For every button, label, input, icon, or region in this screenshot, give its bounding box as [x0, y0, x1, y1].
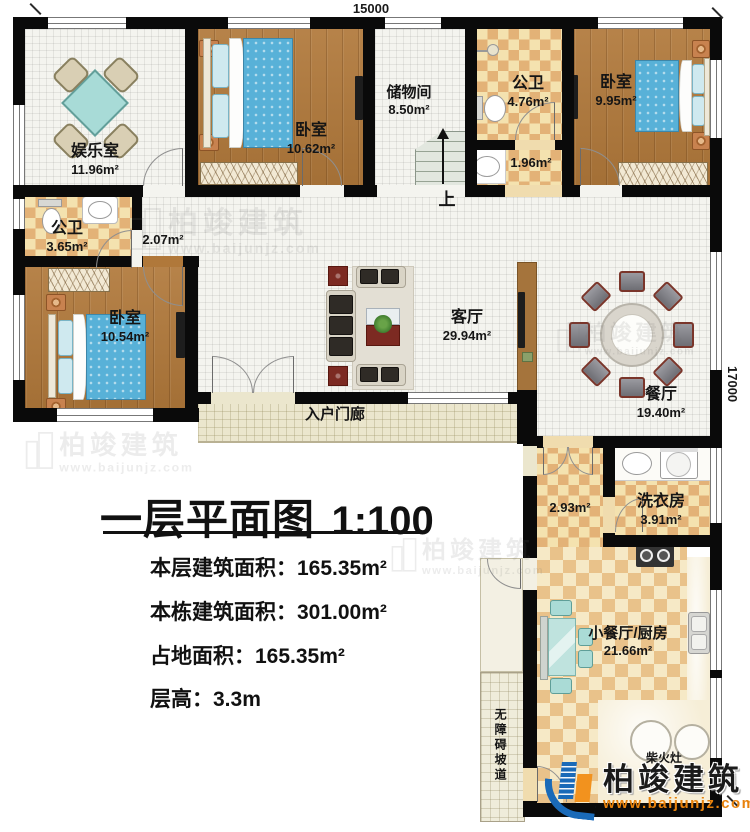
door-opening	[523, 558, 537, 590]
room-label-bath-left: 公卫 3.65m²	[46, 220, 87, 254]
toilet-tank	[38, 199, 62, 207]
stair-arrow-head	[437, 128, 449, 139]
sink-basin	[691, 634, 707, 650]
room-name: 无障碍坡道	[493, 708, 507, 783]
wardrobe	[618, 162, 708, 186]
room-label-bath-sub: 1.96m²	[510, 155, 551, 170]
room-name: 卧室	[287, 122, 335, 141]
window	[13, 295, 25, 380]
window	[710, 678, 722, 758]
nightstand	[46, 294, 66, 311]
bed-sheet	[679, 60, 692, 132]
chair	[550, 600, 572, 616]
room-area: 1.96m²	[510, 155, 551, 170]
sofa-cushion	[360, 269, 378, 284]
dimension-top: 15000	[341, 1, 401, 16]
bench	[540, 616, 548, 680]
wall	[363, 29, 375, 197]
door-opening	[300, 185, 344, 197]
room-label-storage: 储物间 8.50m²	[386, 84, 431, 117]
wall	[185, 29, 198, 197]
door-opening	[515, 140, 555, 150]
stat-floor-area: 本层建筑面积：165.35m²	[150, 552, 387, 582]
room-area: 21.66m²	[588, 643, 667, 658]
stat-total-area: 本栋建筑面积：301.00m²	[150, 596, 387, 626]
window	[48, 17, 126, 29]
door-opening	[523, 446, 537, 476]
washer-drum	[666, 452, 691, 477]
brand-logo: 柏竣建筑 www.baijunjz.com	[543, 757, 750, 819]
room-name: 卧室	[595, 74, 636, 93]
burner-icon	[640, 549, 653, 562]
chair	[619, 271, 645, 292]
room-area: 8.50m²	[386, 102, 431, 117]
room-label-hall: 2.07m²	[142, 232, 183, 247]
dimension-right: 17000	[725, 366, 740, 402]
watermark-logo-icon	[24, 432, 54, 469]
room-name: 公卫	[46, 220, 87, 239]
pillow	[58, 320, 73, 356]
window	[408, 392, 508, 404]
window	[57, 408, 153, 422]
label-ramp: 无障碍坡道	[493, 678, 507, 813]
dimension-tick	[29, 3, 41, 15]
room-name: 洗衣房	[637, 493, 685, 512]
room-label-corridor: 2.93m²	[549, 500, 590, 515]
stat-footprint: 占地面积：165.35m²	[150, 640, 345, 670]
wall	[562, 29, 574, 197]
room-label-entertainment: 娱乐室 11.96m²	[71, 143, 119, 177]
wardrobe	[200, 162, 298, 185]
room-area: 10.62m²	[287, 141, 335, 156]
bed-blanket	[635, 60, 679, 132]
window	[710, 590, 722, 670]
room-area: 2.93m²	[549, 500, 590, 515]
sink-icon	[474, 156, 500, 177]
window	[710, 448, 722, 523]
room-area: 9.95m²	[595, 93, 636, 108]
label-stairs-up: 上	[439, 190, 456, 210]
window	[228, 17, 310, 29]
title-underline	[103, 531, 421, 534]
watermark-url: www.baijunjz.com	[59, 460, 193, 474]
tv-icon	[176, 312, 185, 358]
brand-url: www.baijunjz.com	[603, 795, 750, 813]
pillow	[58, 358, 73, 394]
pillow	[212, 44, 229, 88]
room-label-living: 客厅 29.94m²	[443, 309, 491, 343]
room-name: 卧室	[101, 310, 149, 329]
room-name: 餐厅	[637, 386, 685, 405]
room-label-kitchen: 小餐厅/厨房 21.66m²	[588, 625, 667, 658]
toilet-icon	[484, 95, 506, 122]
plan-title: 一层平面图 1:100	[100, 486, 434, 547]
title-scale: 1:100	[331, 499, 433, 543]
stairs-up-text: 上	[439, 190, 456, 209]
side-table	[328, 366, 348, 386]
window	[13, 199, 25, 229]
wall	[465, 29, 477, 197]
room-label-bedroom1: 卧室 10.62m²	[287, 122, 335, 156]
brand-logo-icon	[543, 757, 599, 819]
logo-tower-orange	[575, 774, 593, 802]
stat-height: 层高：3.3m	[150, 683, 261, 713]
door-opening	[132, 230, 142, 267]
wall	[523, 444, 537, 803]
room-label-bedroom2: 卧室 9.95m²	[595, 74, 636, 108]
room-name: 娱乐室	[71, 143, 119, 162]
room-area: 3.65m²	[46, 239, 87, 254]
room-name: 公卫	[507, 75, 548, 94]
dining-table-top	[611, 314, 653, 356]
sofa-cushion	[360, 367, 378, 382]
room-label-bath-top: 公卫 4.76m²	[507, 75, 548, 109]
window	[598, 17, 683, 29]
sofa-cushion	[381, 269, 399, 284]
wall	[185, 256, 198, 422]
stair-arrow-line	[442, 136, 444, 184]
title-text: 一层平面图	[100, 496, 315, 543]
room-name: 储物间	[386, 84, 431, 102]
bath-opening	[505, 185, 562, 197]
door-opening	[603, 497, 615, 533]
window	[710, 252, 722, 370]
room-label-bedroom3: 卧室 10.54m²	[101, 310, 149, 344]
plant-icon	[374, 315, 392, 333]
room-area: 11.96m²	[71, 162, 119, 177]
room-area: 3.91m²	[637, 512, 685, 527]
chair	[569, 322, 590, 348]
bed-sheet	[73, 314, 87, 400]
window	[385, 17, 441, 29]
door-opening	[523, 768, 537, 801]
chair	[550, 678, 572, 694]
tv-icon	[355, 76, 363, 120]
cabinet-plant-icon	[522, 352, 533, 362]
bed-blanket	[243, 38, 293, 148]
room-name: 小餐厅/厨房	[588, 625, 667, 643]
window	[710, 60, 722, 138]
sofa-cushion	[381, 367, 399, 382]
room-label-laundry: 洗衣房 3.91m²	[637, 493, 685, 527]
room-area: 10.54m²	[101, 329, 149, 344]
bed-headboard	[48, 314, 56, 398]
watermark-brand: 柏竣建筑	[59, 432, 193, 460]
sofa-cushion	[329, 316, 353, 335]
nightstand	[692, 40, 710, 58]
sofa-cushion	[329, 295, 353, 314]
door-opening	[580, 185, 622, 197]
tv-icon	[518, 292, 525, 348]
room-area: 19.40m²	[637, 405, 685, 420]
room-name: 客厅	[443, 309, 491, 328]
sink-icon	[88, 201, 112, 219]
room-label-dining: 餐厅 19.40m²	[637, 386, 685, 420]
watermark: 柏竣建筑www.baijunjz.com	[24, 432, 194, 474]
room-area: 4.76m²	[507, 94, 548, 109]
entry-door-opening	[211, 392, 295, 404]
toilet-tank	[476, 96, 483, 120]
pillow	[212, 94, 229, 138]
side-table	[328, 266, 348, 286]
room-area: 2.07m²	[142, 232, 183, 247]
shower-head-icon	[487, 44, 499, 56]
wardrobe	[48, 268, 110, 292]
floor-plan: 柏竣建筑www.baijunjz.com 柏竣建筑www.baijunjz.co…	[0, 0, 750, 832]
kitchen-table	[548, 618, 576, 676]
room-name: 入户门廊	[305, 406, 365, 424]
room-label-porch: 入户门廊	[305, 406, 365, 424]
window	[13, 105, 25, 185]
sink-icon	[622, 452, 652, 475]
chair	[673, 322, 694, 348]
bed-headboard	[203, 38, 211, 148]
door-opening	[143, 185, 185, 197]
burner-icon	[657, 549, 670, 562]
room-area: 29.94m²	[443, 328, 491, 343]
sofa-cushion	[329, 337, 353, 356]
sink-basin	[691, 616, 707, 632]
brand-name: 柏竣建筑	[603, 764, 750, 795]
wall	[603, 535, 710, 547]
